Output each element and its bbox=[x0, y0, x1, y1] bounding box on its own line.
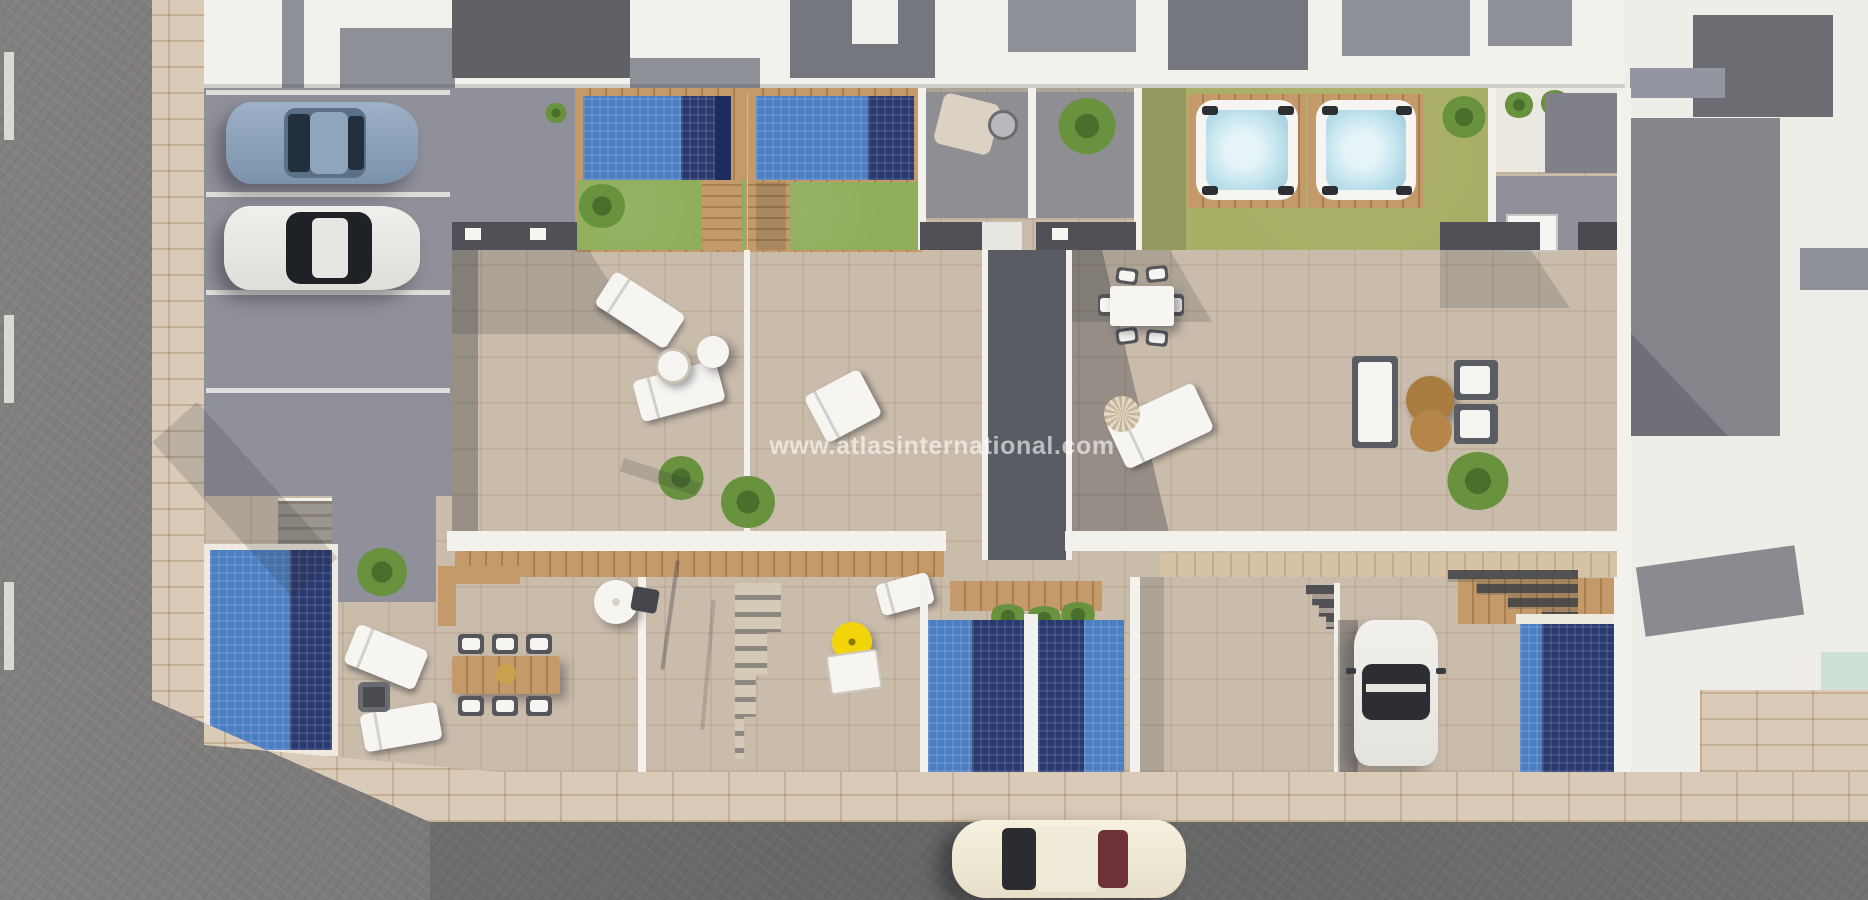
dining-chair bbox=[526, 634, 552, 654]
roof-block-4 bbox=[1342, 0, 1470, 56]
pool-unit2-shadow bbox=[868, 96, 914, 180]
hot-tub-pad bbox=[1396, 186, 1412, 195]
hot-tub-pad bbox=[1278, 186, 1294, 195]
patio-table bbox=[630, 586, 660, 614]
roof-strip bbox=[282, 0, 304, 88]
roof-dark bbox=[452, 0, 630, 78]
roof-block-5 bbox=[1488, 0, 1572, 46]
lawn-shadow bbox=[1142, 88, 1186, 250]
bush bbox=[545, 103, 567, 123]
palm-plant bbox=[1504, 92, 1534, 118]
kitchen-table bbox=[982, 222, 1022, 250]
watermark-text: www.atlasinternational.com bbox=[764, 432, 1120, 461]
ball-lamp bbox=[697, 336, 729, 368]
outdoor-kitchen-4 bbox=[1440, 222, 1540, 250]
deck-steps-unit1 bbox=[702, 180, 742, 250]
side-table bbox=[655, 348, 691, 384]
car-windshield bbox=[1002, 828, 1036, 890]
parking-line bbox=[206, 290, 450, 295]
kitchen-sink bbox=[1052, 228, 1068, 240]
tree bbox=[578, 184, 626, 228]
fire-pit bbox=[988, 110, 1018, 140]
walkway-deck bbox=[455, 551, 944, 577]
party-wall bbox=[1066, 250, 1072, 560]
roof-block-2 bbox=[1008, 0, 1136, 52]
dining-chair bbox=[1145, 329, 1169, 347]
parapet-wall bbox=[1065, 531, 1621, 551]
right-pool-coping bbox=[1516, 614, 1620, 624]
sofa-cushions bbox=[1358, 362, 1392, 442]
right-pool-shadow bbox=[1542, 624, 1614, 772]
hot-tub-pad bbox=[1322, 186, 1338, 195]
car-rear-window bbox=[1098, 830, 1128, 888]
side-dark-box bbox=[1578, 222, 1620, 250]
kitchen-sink bbox=[530, 228, 546, 240]
hot-tub-pad bbox=[1202, 186, 1218, 195]
coffee-table bbox=[1410, 410, 1452, 452]
palm-plant bbox=[1442, 96, 1486, 138]
parking-line bbox=[206, 90, 450, 95]
plunge-pool-1 bbox=[928, 620, 972, 772]
dining-chair bbox=[458, 696, 484, 716]
hot-tub-pad bbox=[1396, 106, 1412, 115]
yard-wall bbox=[1130, 577, 1140, 772]
aerial-render-scene: www.atlasinternational.com bbox=[0, 0, 1868, 900]
dining-chair bbox=[1115, 267, 1139, 286]
dining-chair bbox=[1145, 265, 1169, 283]
car-mirror bbox=[1436, 668, 1446, 674]
side-gray-block bbox=[1545, 93, 1617, 173]
right-gray-band bbox=[1800, 248, 1868, 290]
right-bottom-tiles bbox=[1700, 690, 1868, 772]
hot-tub-2-water bbox=[1326, 110, 1406, 190]
palm-plant bbox=[1058, 98, 1116, 154]
kitchen-sink bbox=[465, 228, 481, 240]
wicker-headrest bbox=[1104, 396, 1140, 432]
yard-shadow bbox=[1140, 577, 1164, 772]
car-rear-glass bbox=[348, 116, 364, 170]
car-roof-strip bbox=[1366, 684, 1426, 692]
palm-plant bbox=[1446, 452, 1510, 510]
lane-dash bbox=[4, 582, 14, 670]
dining-chair bbox=[458, 634, 484, 654]
pool-unit1-deep bbox=[715, 96, 731, 180]
lane-dash bbox=[4, 315, 14, 403]
plunge-pool-1-shadow bbox=[972, 620, 1024, 772]
garden-plant bbox=[356, 548, 408, 596]
car-roof bbox=[312, 218, 348, 278]
car-roof bbox=[310, 112, 348, 174]
armchair-cushion bbox=[1460, 410, 1490, 438]
parapet-wall bbox=[447, 531, 946, 551]
dining-chair bbox=[492, 696, 518, 716]
hot-tub-pad bbox=[1322, 106, 1338, 115]
dining-chair bbox=[492, 634, 518, 654]
car-windshield bbox=[288, 114, 310, 172]
right-pool bbox=[1520, 624, 1542, 772]
outdoor-kitchen-3 bbox=[1036, 222, 1136, 250]
passage-shadow bbox=[988, 250, 1066, 560]
patio-table-white bbox=[825, 649, 882, 696]
dining-chair bbox=[1115, 327, 1139, 346]
lawn-shadow bbox=[756, 182, 786, 250]
dining-chair bbox=[526, 696, 552, 716]
plunge-pool-2 bbox=[1084, 620, 1124, 772]
palm-plant bbox=[720, 476, 776, 528]
hot-tub-1-water bbox=[1206, 110, 1288, 190]
roof-block bbox=[340, 28, 455, 88]
pool-divider-wall bbox=[1024, 614, 1038, 772]
car-mirror bbox=[1346, 668, 1356, 674]
lane-dash bbox=[4, 52, 14, 140]
parking-line bbox=[206, 388, 450, 393]
boundary-wall bbox=[1617, 88, 1631, 772]
parking-line bbox=[206, 192, 450, 197]
hot-tub-pad bbox=[1202, 106, 1218, 115]
armchair-cushion bbox=[1460, 366, 1490, 394]
roof-block-3 bbox=[1168, 0, 1308, 70]
car-glass bbox=[1362, 664, 1430, 720]
right-roof-dark bbox=[1693, 15, 1833, 117]
fire-table bbox=[358, 682, 390, 712]
yard-wall bbox=[920, 577, 928, 772]
right-roof-band bbox=[1630, 68, 1725, 98]
car-roof bbox=[1036, 826, 1098, 892]
plunge-pool-2-shadow bbox=[1038, 620, 1084, 772]
table-bowl bbox=[496, 664, 516, 684]
hot-tub-pad bbox=[1278, 106, 1294, 115]
wood-planter bbox=[438, 566, 456, 626]
dining-table bbox=[1110, 286, 1174, 326]
roof-cutout bbox=[852, 0, 898, 44]
garden-wall bbox=[1028, 88, 1036, 218]
